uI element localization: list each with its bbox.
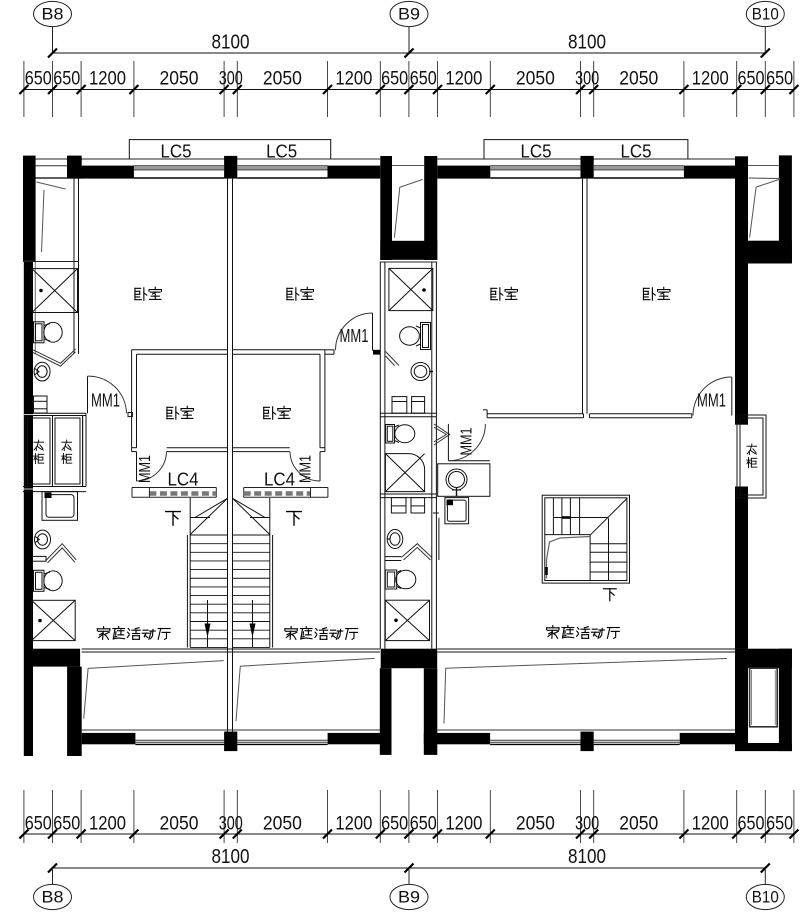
svg-text:MM1: MM1 bbox=[697, 391, 726, 411]
svg-text:B10: B10 bbox=[752, 887, 779, 906]
svg-text:650: 650 bbox=[738, 814, 765, 835]
svg-text:B8: B8 bbox=[42, 887, 64, 906]
svg-text:300: 300 bbox=[219, 69, 243, 90]
svg-text:MM1: MM1 bbox=[137, 455, 154, 483]
svg-text:650: 650 bbox=[766, 814, 793, 835]
svg-text:8100: 8100 bbox=[212, 846, 250, 868]
svg-text:1200: 1200 bbox=[692, 69, 729, 90]
svg-text:650: 650 bbox=[53, 814, 80, 835]
svg-text:LC5: LC5 bbox=[266, 142, 297, 162]
svg-text:650: 650 bbox=[381, 69, 408, 90]
svg-text:2050: 2050 bbox=[263, 814, 302, 835]
svg-text:2050: 2050 bbox=[263, 69, 302, 90]
svg-text:B10: B10 bbox=[752, 4, 779, 23]
svg-text:8100: 8100 bbox=[568, 32, 606, 54]
svg-text:LC5: LC5 bbox=[621, 142, 652, 162]
svg-text:650: 650 bbox=[410, 69, 437, 90]
svg-text:650: 650 bbox=[766, 69, 793, 90]
svg-text:B8: B8 bbox=[42, 4, 64, 23]
svg-text:2050: 2050 bbox=[619, 69, 658, 90]
svg-text:300: 300 bbox=[575, 69, 599, 90]
svg-text:MM1: MM1 bbox=[298, 455, 315, 483]
svg-text:MM1: MM1 bbox=[459, 427, 476, 455]
svg-text:300: 300 bbox=[575, 814, 599, 835]
svg-text:2050: 2050 bbox=[516, 69, 555, 90]
svg-text:2050: 2050 bbox=[160, 814, 199, 835]
svg-text:1200: 1200 bbox=[692, 814, 729, 835]
svg-text:LC4: LC4 bbox=[168, 470, 199, 490]
svg-text:650: 650 bbox=[381, 814, 408, 835]
svg-text:B9: B9 bbox=[398, 887, 420, 906]
svg-text:1200: 1200 bbox=[89, 814, 126, 835]
svg-text:2050: 2050 bbox=[516, 814, 555, 835]
svg-text:MM1: MM1 bbox=[91, 391, 120, 411]
svg-text:8100: 8100 bbox=[212, 32, 250, 54]
svg-text:650: 650 bbox=[53, 69, 80, 90]
svg-text:650: 650 bbox=[738, 69, 765, 90]
svg-text:LC5: LC5 bbox=[521, 142, 552, 162]
svg-text:1200: 1200 bbox=[335, 814, 372, 835]
svg-text:8100: 8100 bbox=[568, 846, 606, 868]
svg-text:LC5: LC5 bbox=[161, 142, 192, 162]
svg-text:650: 650 bbox=[25, 69, 52, 90]
svg-text:1200: 1200 bbox=[445, 814, 482, 835]
svg-text:1200: 1200 bbox=[335, 69, 372, 90]
svg-text:650: 650 bbox=[25, 814, 52, 835]
svg-text:650: 650 bbox=[410, 814, 437, 835]
svg-text:B9: B9 bbox=[398, 4, 420, 23]
svg-text:1200: 1200 bbox=[89, 69, 126, 90]
svg-text:1200: 1200 bbox=[445, 69, 482, 90]
svg-text:MM1: MM1 bbox=[340, 326, 369, 346]
svg-text:LC4: LC4 bbox=[264, 470, 295, 490]
svg-text:300: 300 bbox=[219, 814, 243, 835]
svg-text:2050: 2050 bbox=[619, 814, 658, 835]
svg-text:2050: 2050 bbox=[160, 69, 199, 90]
